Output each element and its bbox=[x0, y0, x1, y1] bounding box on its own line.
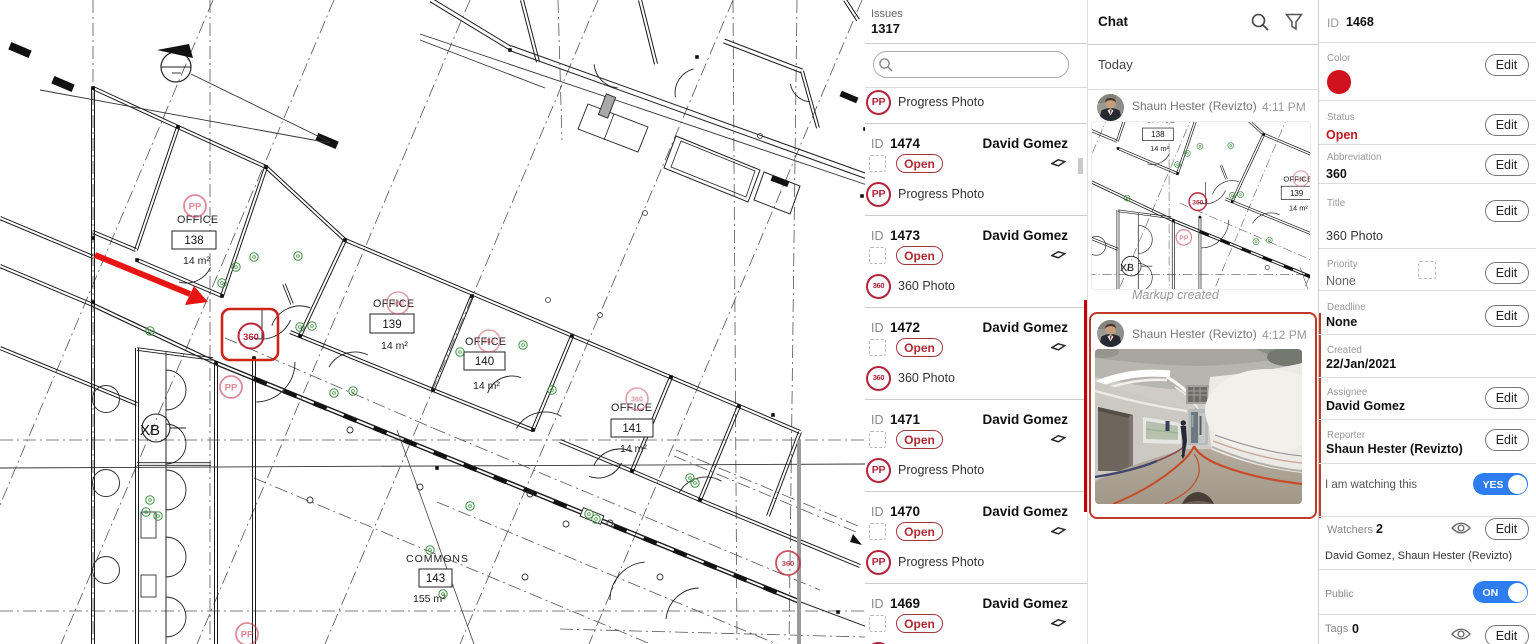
svg-text:360: 360 bbox=[1297, 176, 1305, 182]
svg-text:155 m²: 155 m² bbox=[413, 593, 446, 605]
svg-text:14 m²: 14 m² bbox=[183, 255, 210, 267]
svg-text:139: 139 bbox=[382, 319, 401, 331]
svg-text:14 m²: 14 m² bbox=[1289, 204, 1308, 213]
svg-text:360: 360 bbox=[392, 301, 404, 308]
svg-text:14 m²: 14 m² bbox=[1150, 144, 1169, 153]
svg-text:OFFICE: OFFICE bbox=[1146, 122, 1175, 124]
svg-text:360: 360 bbox=[631, 397, 643, 404]
svg-text:COMMONS: COMMONS bbox=[406, 553, 469, 565]
svg-text:XB: XB bbox=[1120, 262, 1134, 274]
svg-text:14 m²: 14 m² bbox=[620, 443, 647, 455]
svg-text:139: 139 bbox=[1290, 189, 1304, 198]
svg-text:360: 360 bbox=[243, 332, 259, 343]
svg-text:PP: PP bbox=[241, 630, 254, 641]
svg-text:14 m²: 14 m² bbox=[381, 340, 408, 352]
svg-text:360: 360 bbox=[782, 559, 795, 568]
svg-text:14 m²: 14 m² bbox=[473, 380, 500, 392]
svg-text:PP: PP bbox=[1179, 235, 1188, 242]
svg-text:138: 138 bbox=[1151, 130, 1165, 139]
svg-text:XB: XB bbox=[140, 422, 160, 439]
svg-text:PP: PP bbox=[189, 202, 202, 213]
svg-text:143: 143 bbox=[426, 573, 445, 585]
svg-text:PP: PP bbox=[225, 383, 238, 394]
svg-text:360: 360 bbox=[483, 339, 495, 346]
svg-text:360: 360 bbox=[1192, 199, 1203, 206]
svg-text:141: 141 bbox=[622, 423, 641, 435]
svg-text:138: 138 bbox=[184, 235, 203, 247]
svg-text:140: 140 bbox=[475, 356, 494, 368]
